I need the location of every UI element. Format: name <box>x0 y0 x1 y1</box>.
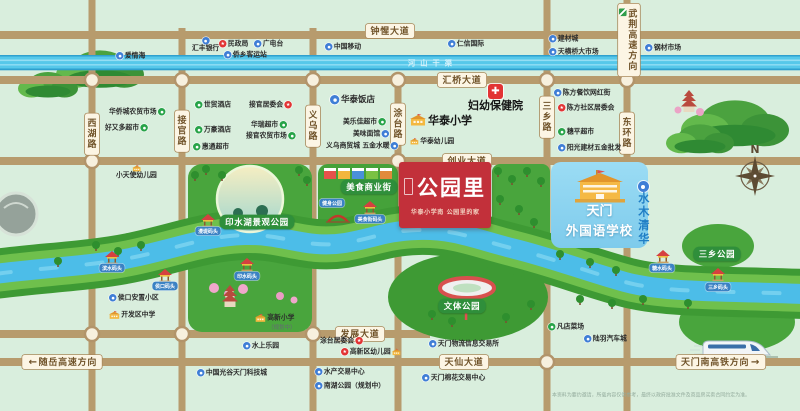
poi-label: 世贸酒店 <box>204 101 231 108</box>
poi-label: 天门棉花交易中心 <box>431 374 485 381</box>
road-label-vertical: 东环路 <box>619 112 635 155</box>
poi-label: 侯口安置小区 <box>118 294 159 301</box>
poi-label: 中国光谷天门科技城 <box>206 369 267 376</box>
arrow-right-icon: → <box>751 357 760 369</box>
green-marker-icon <box>548 323 555 330</box>
blue-marker-icon <box>197 369 204 376</box>
poi-label: 广电台 <box>263 40 283 47</box>
green-marker-icon <box>193 143 200 150</box>
direction-label: 天门南高铁方向→ <box>676 354 767 370</box>
poi-marker: ★陈方社区居委会 <box>558 104 614 111</box>
poi-label: 华瑞超市 <box>251 121 278 128</box>
blue-marker-icon <box>325 43 332 50</box>
poi-label: 妇幼保健院 <box>468 100 523 111</box>
school-building-icon <box>132 165 141 172</box>
poi-label: 美味面馆 <box>353 130 380 137</box>
park-label: 印水湖景观公园 <box>220 215 295 230</box>
road-label-vertical: 三乡路 <box>539 96 555 139</box>
poi-marker: ★高新区幼儿园 <box>341 348 401 355</box>
arrow-left-icon: ← <box>28 357 37 369</box>
poi-label: 华侨城农贸市场 <box>109 108 157 115</box>
poi-marker: 侯口安置小区 <box>109 294 159 301</box>
poi-label: 陆羽汽车城 <box>593 335 627 342</box>
blue-marker-icon <box>554 89 561 96</box>
red-marker-icon: ★ <box>284 101 291 108</box>
project-banner: 公园里 华泰小学南 公园里的家 <box>399 162 491 228</box>
poi-marker: 阳光建材五金批发 <box>558 144 621 151</box>
red-marker-icon: ★ <box>355 337 362 344</box>
school-building-icon <box>109 311 120 319</box>
dock-label: 侯口码头 <box>152 282 177 291</box>
poi-label: 惠通超市 <box>202 143 229 150</box>
red-marker-icon: ★ <box>341 348 348 355</box>
poi-label: 好又多超市 <box>105 124 139 131</box>
poi-marker: ★接官居委会 <box>249 101 292 108</box>
poi-marker: 天横桥大市场 <box>549 48 599 55</box>
poi-label: 接官农贸市场 <box>246 132 287 139</box>
poi-marker: 侨乡客运站 <box>224 51 267 58</box>
school-building-icon <box>569 168 631 204</box>
poi-label: 南湖公园（规划中） <box>324 382 385 389</box>
park-label: 美食商业街 <box>341 180 398 195</box>
shop-row-icon <box>324 168 392 179</box>
location-map: N 河山干渠 公园里 华泰小学南 公园里的家 天门 外国语学校 水木清华 本资料… <box>0 0 800 411</box>
direction-label: 武荆高速方向 <box>617 3 640 77</box>
blue-marker-icon <box>645 44 652 51</box>
green-marker-icon <box>280 121 287 128</box>
poi-marker: 水上乐园 <box>243 342 279 349</box>
poi-marker: 惠通超市 <box>193 143 229 150</box>
poi-label: 凡店菜场 <box>557 323 584 330</box>
dock-label: 糖水码头 <box>649 264 674 273</box>
poi-label: 阳光建材五金批发 <box>567 144 621 151</box>
park-label: 三乡公园 <box>693 247 741 262</box>
dock-label: 印水码头 <box>234 272 259 281</box>
poi-label: 陈方社区居委会 <box>567 104 615 111</box>
blue-marker-icon <box>109 294 116 301</box>
dock-label: 滨水码头 <box>99 264 124 273</box>
green-marker-icon <box>158 108 165 115</box>
poi-marker: 万豪酒店 <box>195 126 231 133</box>
residence-label: 水木清华 <box>635 192 651 246</box>
poi-marker: 天门棉花交易中心 <box>422 374 485 381</box>
poi-label: 高新区幼儿园 <box>350 348 391 355</box>
blue-marker-icon <box>243 342 250 349</box>
road-label-vertical: 义乌路 <box>305 105 321 148</box>
park-label: 文体公园 <box>438 299 486 314</box>
blue-marker-icon <box>202 37 209 44</box>
stadium-icon <box>440 278 494 298</box>
blue-marker-icon <box>584 335 591 342</box>
poi-label: 美乐佳超市 <box>343 118 377 125</box>
poi-label: 水产交易中心 <box>324 368 365 375</box>
school-building-icon <box>255 314 266 322</box>
road-label-vertical: 西湖路 <box>84 113 100 156</box>
project-name: 公园里 <box>417 172 486 202</box>
poi-marker: 开发区中学 <box>109 311 155 319</box>
blue-marker-icon <box>116 52 123 59</box>
poi-marker: 华泰饭店 <box>330 95 375 104</box>
poi-marker: 世贸酒店 <box>195 101 231 108</box>
project-tagline: 华泰小学南 公园里的家 <box>411 207 480 216</box>
photo-inset-circle <box>0 193 37 235</box>
logo-seal-icon <box>404 178 413 195</box>
poi-label: 华泰幼儿园 <box>420 138 454 145</box>
blue-marker-icon <box>254 40 261 47</box>
blue-marker-icon <box>558 144 565 151</box>
poi-label: 天门物流信息交易所 <box>438 340 499 347</box>
poi-label: 高新小学 <box>267 315 294 322</box>
poi-marker: 凡店菜场 <box>548 323 584 330</box>
poi-marker: 美味面馆 <box>353 130 389 137</box>
direction-label: ←随岳高速方向 <box>21 354 102 370</box>
direction-label-text: 随岳高速方向 <box>39 357 98 368</box>
poi-label: 中国移动 <box>334 43 361 50</box>
blue-marker-icon <box>422 374 429 381</box>
poi-marker: 仁信国际 <box>448 40 484 47</box>
green-marker-icon <box>195 101 202 108</box>
disclaimer-text: 本资料为要约邀请，所载内容仅供参考，最终以政府批准文件及商品房买卖合同约定为准。 <box>552 391 750 398</box>
blue-marker-icon <box>382 130 389 137</box>
red-marker-icon: ★ <box>558 104 565 111</box>
poi-label: 天横桥大市场 <box>558 48 599 55</box>
compass-icon: N <box>735 143 775 196</box>
poi-label: 小天使幼儿园 <box>116 172 157 179</box>
poi-marker: ✚妇幼保健院 <box>468 84 523 111</box>
green-marker-icon <box>140 124 147 131</box>
poi-marker: ★涂台居委会 <box>320 337 363 344</box>
blue-marker-icon <box>224 51 231 58</box>
road-label: 钟惺大道 <box>365 23 415 39</box>
poi-label: 钢材市场 <box>654 44 681 51</box>
hospital-cross-icon: ✚ <box>488 84 503 99</box>
road-label-vertical: 涂台路 <box>390 103 406 146</box>
school-name-line1: 天门 <box>586 204 612 220</box>
poi-marker: 广电台 <box>254 40 283 47</box>
road-label-vertical: 接官路 <box>174 110 190 153</box>
road-label: 天仙大道 <box>439 354 489 370</box>
poi-marker: 钢材市场 <box>645 44 681 51</box>
poi-label: （规划中） <box>268 325 296 331</box>
poi-label: 开发区中学 <box>121 312 155 319</box>
poi-marker: 美乐佳超市 <box>343 118 386 125</box>
red-marker-icon: ★ <box>219 40 226 47</box>
poi-label: 涂台居委会 <box>320 337 354 344</box>
poi-marker: ★民政局 <box>219 40 248 47</box>
poi-marker: 陆羽汽车城 <box>584 335 627 342</box>
poi-label: 水上乐园 <box>252 342 279 349</box>
residence-marker-icon <box>638 181 649 192</box>
poi-label: 华泰小学 <box>428 115 472 126</box>
poi-marker: （规划中） <box>268 325 296 331</box>
compass-n-label: N <box>750 143 759 156</box>
blue-marker-icon <box>391 142 398 149</box>
poi-marker: 华泰小学 <box>410 114 472 126</box>
school-building-icon <box>410 138 419 145</box>
poi-marker: 华泰幼儿园 <box>410 138 454 145</box>
poi-marker: 穗平超市 <box>558 128 594 135</box>
poi-marker: 天门物流信息交易所 <box>429 340 499 347</box>
poi-marker: 义乌商贸城 五金水暖 <box>326 142 398 149</box>
poi-label: 陈方餐饮网红街 <box>563 89 611 96</box>
poi-marker: 爱情海 <box>116 52 145 59</box>
poi-marker: 高新小学 <box>255 314 294 322</box>
dock-label: 三乡码头 <box>705 283 730 292</box>
poi-label: 建材城 <box>558 35 578 42</box>
poi-marker: 汇丰银行 <box>192 37 219 52</box>
poi-marker: 水产交易中心 <box>315 368 365 375</box>
blue-marker-icon <box>330 95 339 104</box>
blue-marker-icon <box>315 368 322 375</box>
poi-label: 万豪酒店 <box>204 126 231 133</box>
blue-marker-icon <box>315 382 322 389</box>
dock-label: 美食街码头 <box>355 215 385 224</box>
green-marker-icon <box>378 118 385 125</box>
residence-shuimuqinghua: 水木清华 <box>633 181 653 260</box>
poi-label: 仁信国际 <box>457 40 484 47</box>
school-building-icon <box>392 348 401 355</box>
green-marker-icon <box>288 132 295 139</box>
poi-label: 侨乡客运站 <box>233 51 267 58</box>
green-marker-icon <box>558 128 565 135</box>
canal-name-label: 河山干渠 <box>408 57 457 68</box>
poi-marker: 接官农贸市场 <box>246 132 296 139</box>
poi-marker: 陈方餐饮网红街 <box>554 89 610 96</box>
pagoda-icon <box>681 90 697 112</box>
poi-marker: 建材城 <box>549 35 578 42</box>
poi-label: 接官居委会 <box>249 101 283 108</box>
highway-icon <box>619 8 627 16</box>
poi-marker: 华侨城农贸市场 <box>109 108 165 115</box>
poi-label: 穗平超市 <box>567 128 594 135</box>
blue-marker-icon <box>448 40 455 47</box>
poi-marker: 好又多超市 <box>105 124 148 131</box>
green-marker-icon <box>195 126 202 133</box>
poi-label: 汇丰银行 <box>192 45 219 52</box>
blue-marker-icon <box>549 48 556 55</box>
poi-label: 爱情海 <box>125 52 145 59</box>
poi-marker: 中国移动 <box>325 43 361 50</box>
blue-marker-icon <box>429 340 436 347</box>
poi-marker: 南湖公园（规划中） <box>315 382 385 389</box>
dock-label: 漫堤码头 <box>195 227 220 236</box>
direction-label-text: 武荆高速方向 <box>627 8 638 71</box>
blue-marker-icon <box>549 35 556 42</box>
dock-label: 健身公园 <box>319 199 344 208</box>
school-building-icon <box>410 114 426 126</box>
school-name-line2: 外国语学校 <box>566 220 634 239</box>
direction-label-text: 天门南高铁方向 <box>681 357 749 368</box>
poi-marker: 小天使幼儿园 <box>116 165 157 179</box>
poi-label: 华泰饭店 <box>341 95 375 104</box>
poi-marker: 华瑞超市 <box>251 121 287 128</box>
poi-label: 民政局 <box>228 40 248 47</box>
poi-label: 义乌商贸城 五金水暖 <box>326 142 390 149</box>
poi-marker: 中国光谷天门科技城 <box>197 369 267 376</box>
